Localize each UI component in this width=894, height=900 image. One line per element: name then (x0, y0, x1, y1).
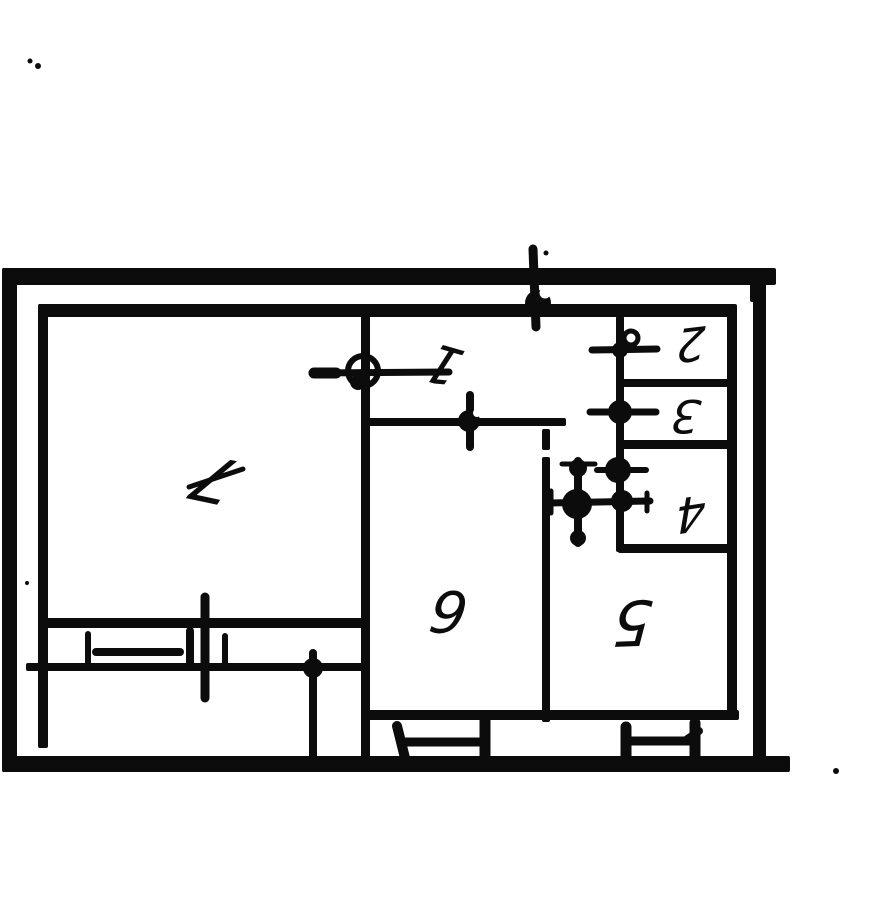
entry-riser-valve-icon (525, 249, 551, 327)
room-3-label: 3 (669, 393, 702, 439)
scan-speck (25, 59, 839, 775)
valve-cross-icon (597, 457, 646, 483)
floor-plan-canvas: 1 2 3 4 5 6 7 (0, 0, 894, 900)
window-icon (397, 719, 485, 766)
valve-cross-icon (458, 395, 481, 447)
room-5-label: 5 (611, 590, 655, 654)
room-4-label: 4 (675, 486, 706, 539)
valve-cross-icon (592, 331, 657, 358)
valve-cross-icon (590, 400, 656, 424)
plan-symbols (0, 0, 894, 900)
room-2-label: 2 (676, 319, 706, 369)
riser-line-icon (303, 653, 323, 757)
window-icon (626, 723, 699, 766)
